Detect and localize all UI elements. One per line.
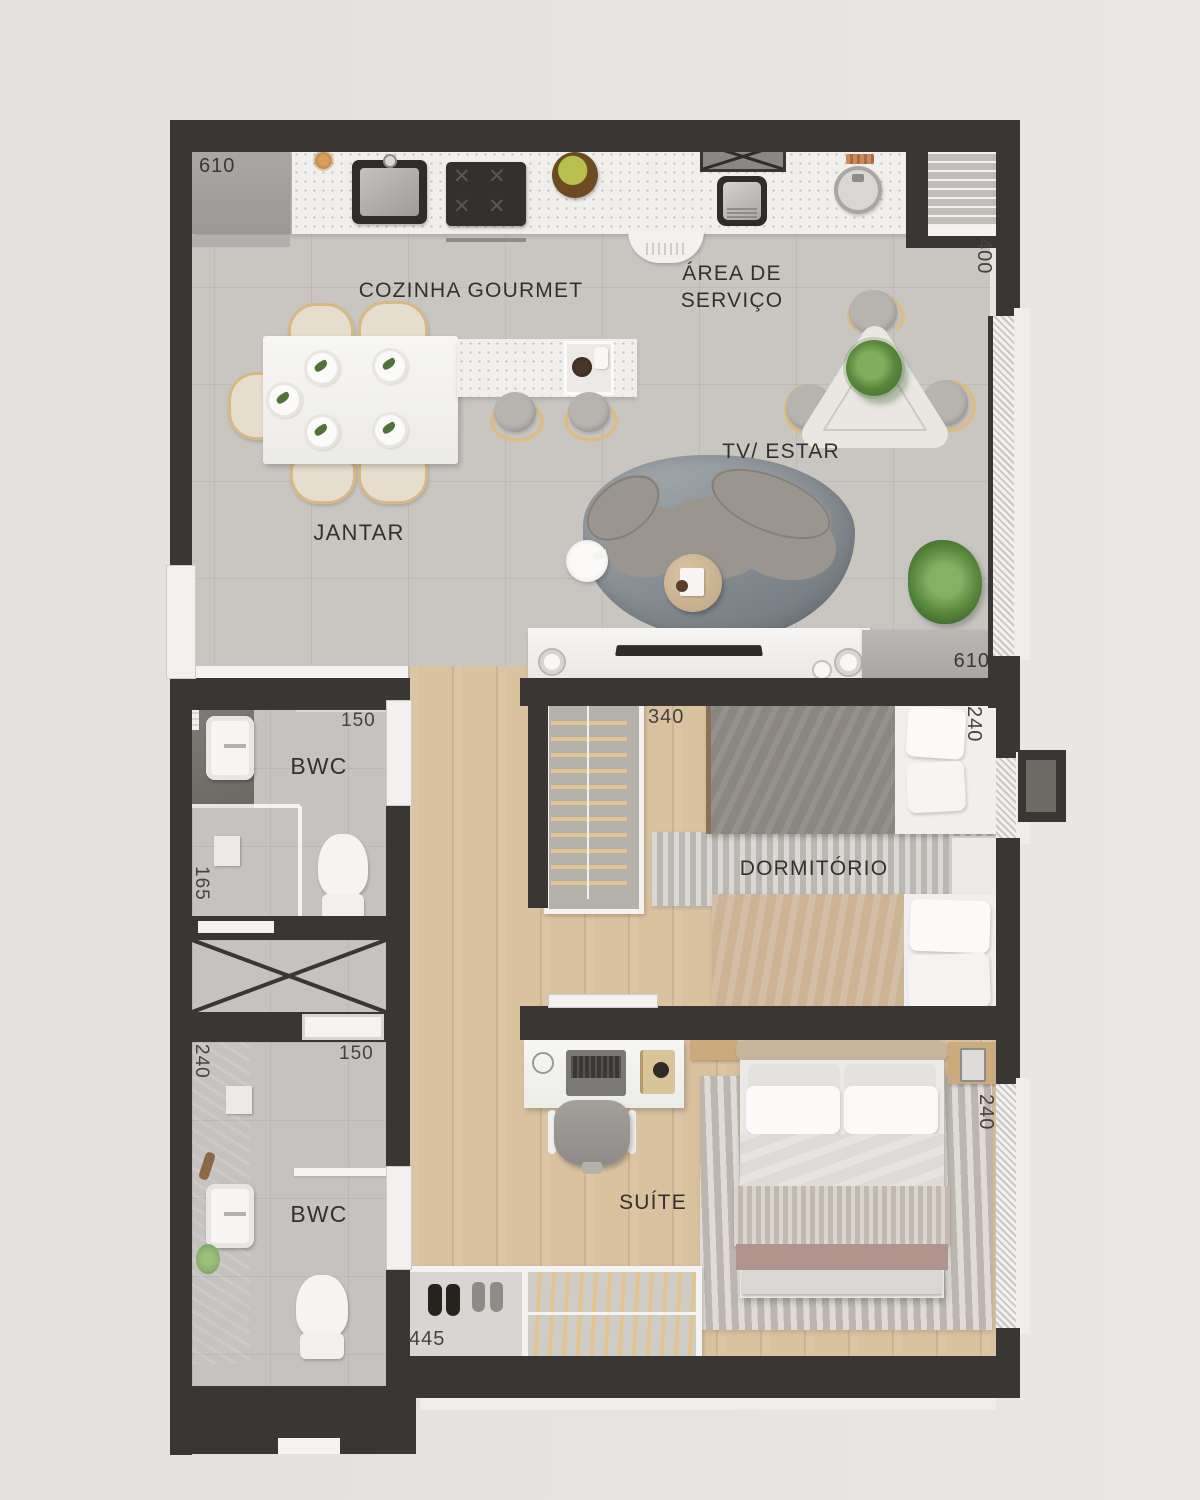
bedroom-window-glass bbox=[996, 758, 1016, 838]
living-window-sill bbox=[1014, 308, 1030, 660]
dim-suite-bed: 240 bbox=[974, 1094, 997, 1130]
shoe-icon bbox=[472, 1282, 485, 1312]
laptop-keyboard bbox=[571, 1056, 621, 1078]
burner-icon: ✕ bbox=[488, 194, 506, 219]
shower-column bbox=[214, 836, 240, 866]
cup-decor bbox=[676, 580, 688, 592]
clothespins-decor bbox=[846, 154, 874, 164]
dim-bwc-lower-door: 150 bbox=[339, 1043, 374, 1065]
wall-wardrobe-stub bbox=[528, 682, 548, 908]
room-label-bwc-lower: BWC bbox=[276, 1201, 362, 1228]
wall-top bbox=[170, 120, 1020, 152]
room-label-service-line1: ÁREA DE bbox=[655, 260, 809, 287]
desk-lamp bbox=[532, 1052, 554, 1074]
floor-plant bbox=[908, 540, 982, 624]
bed-sheet bbox=[740, 1134, 944, 1186]
ac-ledge bbox=[1018, 750, 1066, 822]
dim-bedroom-bed: 240 bbox=[962, 706, 985, 742]
dim-shower-width: 165 bbox=[190, 866, 212, 901]
dim-service-depth: 400 bbox=[972, 238, 995, 274]
faucet-icon bbox=[385, 156, 395, 166]
sprig-decor bbox=[381, 421, 397, 435]
bed-pillow bbox=[905, 706, 966, 760]
bedroom-wardrobe bbox=[544, 700, 644, 914]
shaft-threshold bbox=[198, 921, 274, 933]
sprig-decor bbox=[313, 359, 329, 373]
suite-right-wall-lower bbox=[996, 1328, 1020, 1398]
toilet bbox=[318, 834, 368, 898]
bed-pillow bbox=[906, 761, 967, 814]
dim-suite-closet: 445 bbox=[409, 1328, 445, 1351]
bed-throw-blanket bbox=[734, 1186, 950, 1246]
room-label-service-line2: SERVIÇO bbox=[655, 287, 809, 314]
room-label-suite: SUÍTE bbox=[606, 1191, 700, 1215]
phone-decor bbox=[960, 1048, 986, 1082]
wardrobe-hanger-bars bbox=[551, 709, 627, 895]
suite-window-glass bbox=[996, 1084, 1016, 1328]
office-chair bbox=[548, 1100, 636, 1174]
room-label-living: TV/ ESTAR bbox=[714, 440, 848, 464]
kitchen-sink bbox=[352, 160, 427, 224]
wall-notch bbox=[278, 1438, 340, 1454]
shower-glass-panel bbox=[192, 804, 300, 808]
office-chair-base bbox=[582, 1162, 602, 1174]
oven-handle bbox=[446, 238, 526, 242]
entry-door-opening bbox=[166, 565, 196, 679]
room-label-dining: JANTAR bbox=[296, 520, 422, 546]
drying-rack-bar bbox=[928, 226, 996, 236]
wall-left-upper bbox=[170, 120, 192, 567]
bed-blanket bbox=[712, 894, 904, 1016]
bwc-lower-door bbox=[386, 1166, 412, 1270]
laptop bbox=[566, 1050, 626, 1096]
sprig-decor bbox=[381, 357, 397, 371]
service-niche-wall-bottom bbox=[906, 236, 1020, 248]
toilet bbox=[296, 1275, 348, 1339]
island-tray bbox=[564, 341, 614, 395]
kitchen-sink-basin bbox=[360, 168, 419, 216]
laundry-sink-ribs bbox=[727, 206, 757, 218]
dim-bwc-upper-door: 150 bbox=[341, 710, 376, 732]
bed-pillow bbox=[907, 953, 991, 1010]
suite-closet bbox=[404, 1266, 702, 1362]
office-chair-seat bbox=[554, 1100, 630, 1166]
dim-bwc-lower-depth: 240 bbox=[190, 1044, 212, 1079]
dining-chair bbox=[358, 458, 428, 504]
stool-seat bbox=[494, 392, 536, 432]
ink-pot bbox=[653, 1062, 669, 1078]
shower-glass-panel bbox=[294, 1168, 386, 1176]
plate bbox=[304, 414, 340, 450]
shoe-icon bbox=[428, 1284, 442, 1316]
wall-left-lower bbox=[170, 675, 192, 1455]
technical-shaft-x-icon bbox=[192, 940, 386, 1012]
bedroom-right-wall-lower bbox=[996, 838, 1020, 1084]
console-vase bbox=[836, 650, 861, 675]
toilet-tank bbox=[300, 1333, 344, 1359]
faucet-icon bbox=[224, 1212, 246, 1216]
living-window-glass bbox=[993, 316, 1014, 660]
plate bbox=[372, 348, 408, 384]
bathroom-sink bbox=[206, 716, 254, 780]
single-bed-lower bbox=[712, 894, 998, 1016]
bed-pillow bbox=[909, 899, 991, 954]
bar-stool bbox=[562, 392, 616, 442]
burner-icon: ✕ bbox=[453, 194, 471, 219]
notebook bbox=[640, 1050, 675, 1094]
console-vase bbox=[540, 650, 564, 674]
wall-bedroom-suite-divider bbox=[520, 1006, 1020, 1040]
service-niche-wall bbox=[906, 120, 928, 248]
outer-sill-bottom bbox=[420, 1398, 996, 1410]
ac-unit bbox=[1026, 760, 1056, 812]
desk bbox=[524, 1040, 684, 1108]
bed-footboard bbox=[742, 1270, 942, 1294]
floor-plan: ✕ ✕ ✕ ✕ bbox=[0, 0, 1200, 1500]
burner-icon: ✕ bbox=[453, 164, 471, 189]
shower-glass-panel bbox=[298, 806, 302, 918]
sprig-decor bbox=[313, 423, 329, 437]
fruit-bowl bbox=[552, 152, 598, 198]
closet-hanger-section bbox=[528, 1272, 696, 1356]
room-label-kitchen: COZINHA GOURMET bbox=[340, 279, 602, 303]
exhaust-grill-lines bbox=[646, 243, 686, 255]
plate bbox=[266, 382, 302, 418]
desk-side-table bbox=[690, 1040, 738, 1060]
bed-blanket bbox=[711, 698, 895, 834]
plant-decor bbox=[196, 1244, 220, 1274]
suite-bed-headboard bbox=[736, 1040, 948, 1062]
suite-double-bed bbox=[740, 1060, 944, 1298]
wall-bottom-right bbox=[408, 1356, 1020, 1398]
drying-rack bbox=[928, 152, 996, 236]
table-plant bbox=[846, 340, 902, 396]
coffee-mug bbox=[572, 357, 592, 377]
console-vase bbox=[814, 662, 830, 678]
milk-jug bbox=[594, 347, 608, 369]
room-label-bwc-upper: BWC bbox=[276, 753, 362, 780]
wall-bwc-top bbox=[170, 678, 410, 710]
stool-seat bbox=[568, 392, 610, 432]
wall-right-top bbox=[996, 120, 1020, 316]
room-label-bedroom: DORMITÓRIO bbox=[728, 857, 900, 881]
living-baseboard bbox=[192, 666, 408, 678]
suite-window-sill bbox=[1016, 1078, 1030, 1334]
round-side-table bbox=[664, 554, 722, 612]
plate bbox=[304, 350, 340, 386]
faucet-icon bbox=[224, 744, 246, 748]
shoe-icon bbox=[490, 1282, 503, 1312]
wardrobe-divider bbox=[587, 705, 589, 899]
bar-stool bbox=[488, 392, 542, 442]
bwc-upper-door bbox=[386, 700, 412, 806]
dim-tv-console: 610 bbox=[920, 650, 990, 673]
bwc-lower-niche bbox=[302, 1014, 384, 1040]
shower-column bbox=[226, 1086, 252, 1114]
wall-bedroom-top bbox=[520, 678, 1020, 706]
suite-nightstand bbox=[948, 1042, 996, 1084]
washing-machine-lid bbox=[852, 174, 864, 182]
washing-machine bbox=[834, 166, 882, 214]
fridge-base bbox=[192, 236, 290, 247]
plate bbox=[372, 412, 408, 448]
shoe-icon bbox=[446, 1284, 460, 1316]
sprig-decor bbox=[275, 391, 291, 405]
bed-pillow bbox=[746, 1086, 840, 1134]
bed-pillow bbox=[844, 1086, 938, 1134]
dim-fridge-cabinet: 610 bbox=[199, 155, 235, 178]
tv bbox=[615, 645, 763, 656]
bedroom-right-wall-upper bbox=[996, 700, 1020, 758]
bathroom-sink bbox=[206, 1184, 254, 1248]
dim-bedroom-wardrobe: 340 bbox=[648, 706, 684, 729]
burner-icon: ✕ bbox=[488, 164, 506, 189]
flower-decor bbox=[315, 152, 332, 169]
stove-cooktop: ✕ ✕ ✕ ✕ bbox=[446, 162, 526, 226]
room-label-service: ÁREA DE SERVIÇO bbox=[655, 260, 809, 314]
bed-runner bbox=[736, 1244, 948, 1270]
laundry-sink bbox=[717, 176, 767, 226]
bedroom-door-leaf bbox=[548, 994, 658, 1008]
closet-rail bbox=[528, 1312, 696, 1315]
